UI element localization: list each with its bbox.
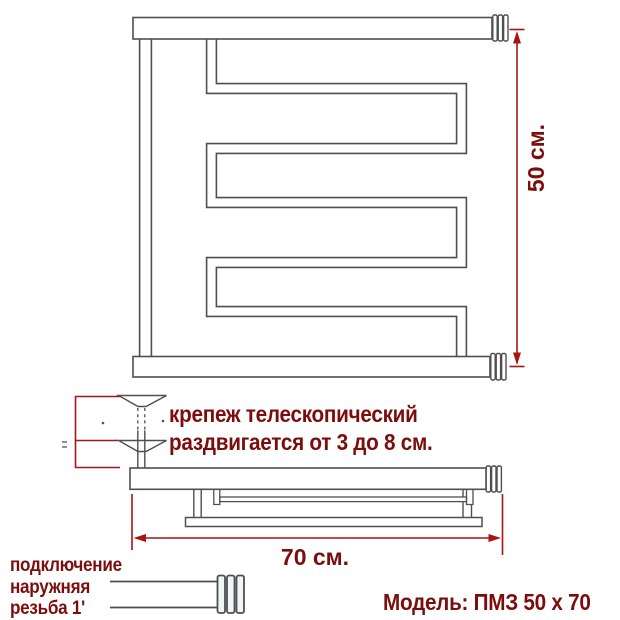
thread-detail-ring-3	[237, 576, 245, 614]
bracket-dot-right	[162, 420, 165, 423]
height-dimension-label: 50 см.	[523, 113, 549, 203]
thread-detail-drawing	[110, 576, 244, 614]
bracket-wall-cone-upper	[119, 396, 167, 407]
bottom-collector-bar	[133, 357, 490, 378]
bracket-wall-cone-lower	[119, 441, 167, 452]
front-view-drawing	[133, 15, 508, 380]
thread-detail-ring-2	[227, 576, 235, 614]
top-view-coil-edge	[220, 497, 467, 502]
top-collector-bar	[133, 18, 492, 40]
arrow-up-icon	[513, 31, 521, 44]
top-view-drawing	[130, 466, 501, 527]
model-label: Модель: ПМЗ 50 x 70	[383, 589, 591, 616]
top-view-front-bar	[130, 468, 486, 489]
arrow-down-icon	[513, 353, 521, 366]
width-dimension-label: 70 см.	[269, 544, 361, 571]
top-view-right-clip	[467, 489, 474, 505]
mount-note-line2: раздвигается от 3 до 8 см.	[169, 429, 433, 456]
bracket-tick-marks	[62, 442, 67, 447]
connection-note-line2: наружняя	[10, 577, 90, 599]
thread-detail-ring-1	[218, 576, 226, 614]
top-view-left-post	[194, 489, 201, 518]
threaded-end-top-icon	[493, 15, 508, 41]
diagram-drawing	[0, 0, 620, 620]
thread-detail-pipe	[110, 582, 218, 608]
connection-note-line3: резьба 1'	[10, 598, 85, 620]
threaded-end-topview-icon	[486, 466, 501, 492]
top-view-wall-plate	[186, 518, 483, 527]
bracket-callout-lines	[76, 397, 121, 468]
top-view-left-clip	[214, 489, 220, 505]
connection-note-line1: подключение	[10, 555, 122, 577]
arrow-left-icon	[134, 534, 147, 542]
bracket-detail-drawing	[62, 396, 167, 469]
mount-note-line1: крепеж телескопический	[169, 401, 418, 428]
arrow-right-icon	[489, 534, 502, 542]
radiator-spec-diagram: 50 см. крепеж телескопический раздвигает…	[0, 0, 620, 620]
bracket-telescopic-dashed	[138, 408, 145, 430]
bracket-dot-left	[102, 422, 105, 425]
threaded-end-bottom-icon	[491, 354, 506, 381]
